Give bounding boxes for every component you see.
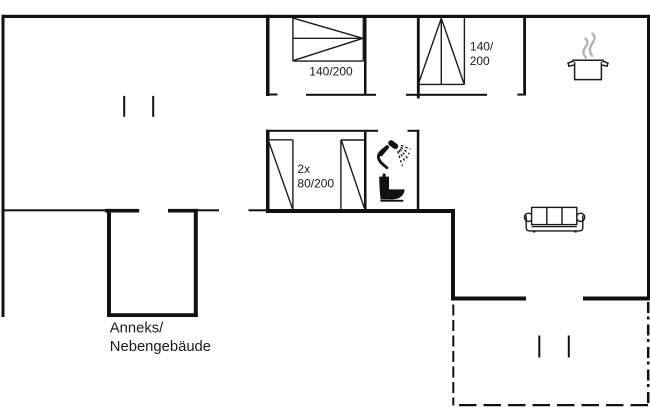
svg-text:140/: 140/ (470, 40, 494, 54)
svg-text:80/200: 80/200 (297, 176, 334, 190)
svg-text:Anneks/: Anneks/ (110, 321, 164, 337)
svg-text:200: 200 (470, 54, 490, 68)
svg-text:140/200: 140/200 (309, 65, 353, 79)
svg-text:Nebengebäude: Nebengebäude (110, 339, 211, 355)
svg-text:2x: 2x (297, 162, 310, 176)
